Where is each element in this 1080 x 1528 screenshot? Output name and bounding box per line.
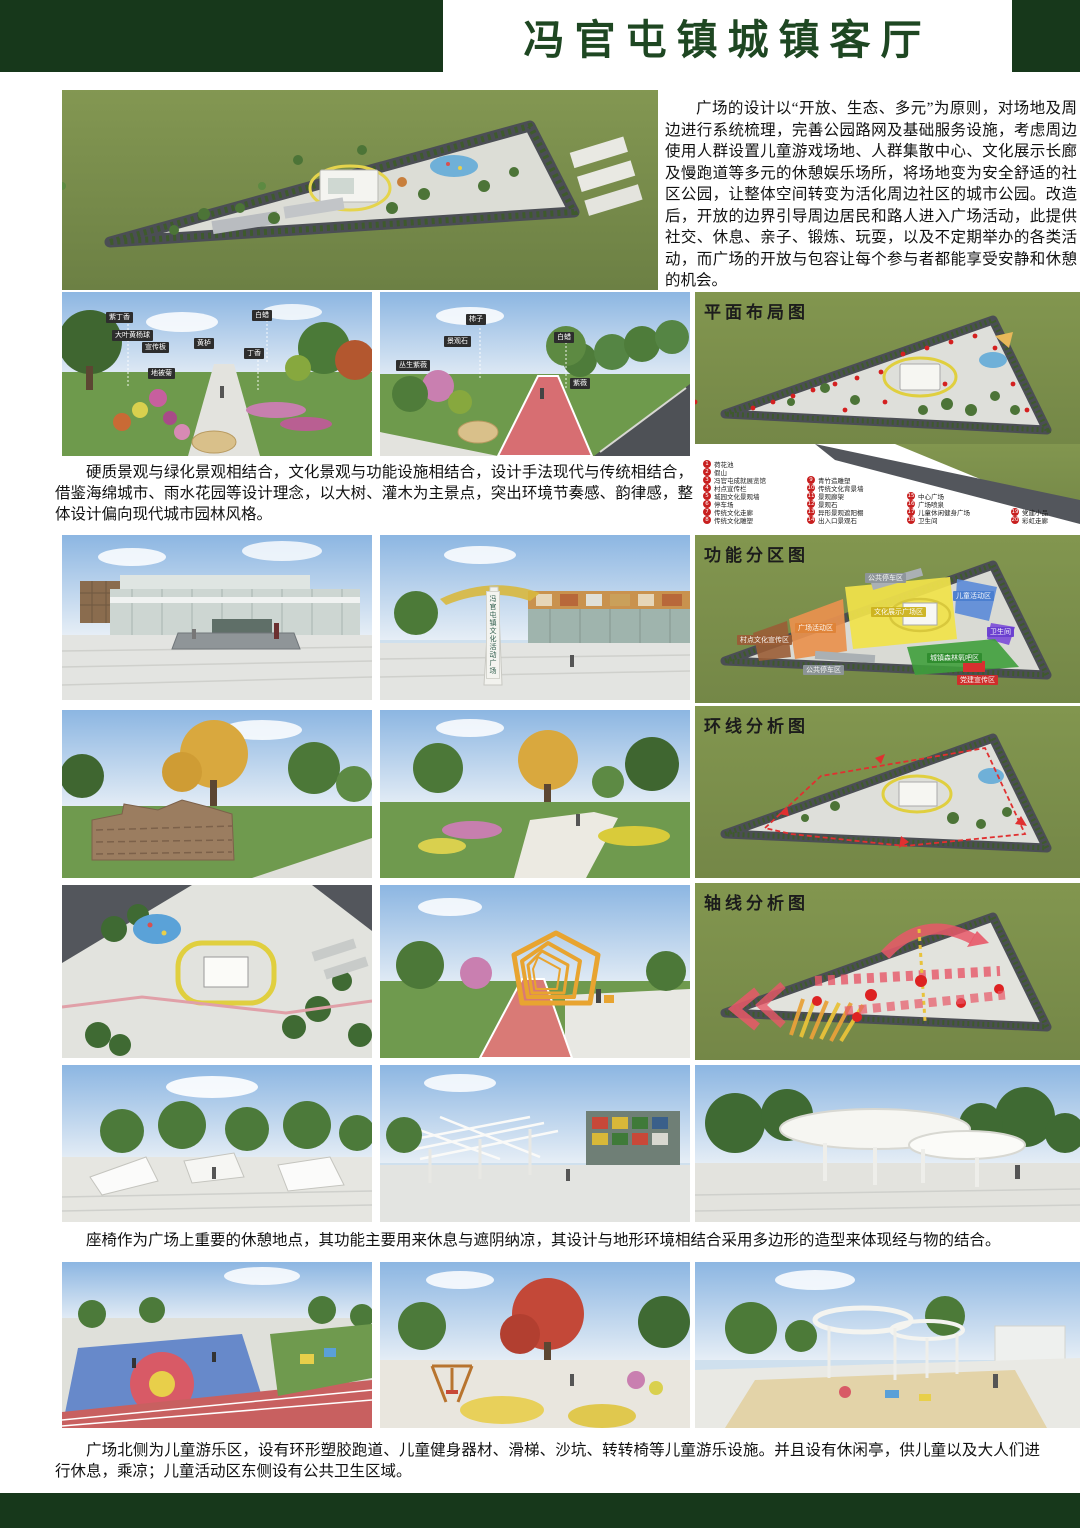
zone-label: 文化展示广场区 [871,607,926,617]
canopy-illustration [695,1065,1080,1222]
plant-label: 柿子 [466,314,486,325]
legend-number-badge: 1 [703,460,711,468]
title-box: 冯官屯镇城镇客厅 [443,0,1012,72]
zone-label: 村点文化宣传区 [737,635,792,645]
render-splash-court [62,1262,372,1428]
legend-number-badge: 18 [907,516,915,524]
render-brick-ruins [62,710,372,878]
render-park-path [380,710,690,878]
legend-number-badge: 16 [907,500,915,508]
zone-label: 儿童活动区 [953,591,994,601]
legend-number-badge: 7 [703,508,711,516]
playground-illustration [380,1262,690,1428]
plant-label: 丁香 [244,348,264,359]
plan-axis-title: 轴线分析图 [704,889,809,914]
aerial-illustration [62,90,658,290]
legend-number-badge: 15 [907,492,915,500]
footer-band [0,1493,1080,1528]
legend-number-badge: 14 [807,516,815,524]
plant-label: 紫丁香 [106,312,133,323]
seats-illustration [62,1065,372,1222]
ruins-illustration [62,710,372,878]
render-canopy-playzone [695,1262,1080,1428]
plan-axis: 轴线分析图 [695,883,1080,1060]
caption-seating: 座椅作为广场上重要的休憩地点，其功能主要用来休息与遮阴纳凉，其设计与地形环境相结… [55,1230,1037,1251]
render-culture-building [62,535,372,700]
poster: 冯官屯镇城镇客厅 [0,0,1080,1528]
plan-layout: 平面布局图 1荷花池 2假山 3冯官屯成就展览馆 4村点宣传栏 5城园文化景观墙… [695,292,1080,525]
legend-item: 18卫生间 [907,516,1003,524]
legend-label: 卫生间 [918,515,938,525]
legend-label: 出入口景观石 [818,515,857,525]
plan-zoning: 功能分区图 公共停车区 儿童活动区 卫生间 文化展示广场区 广场活动区 村点文化… [695,535,1080,703]
legend-number-badge: 2 [703,468,711,476]
plan-loop-title: 环线分析图 [704,712,809,737]
plan-loop: 环线分析图 [695,706,1080,878]
page-title: 冯官屯镇城镇客厅 [524,6,932,66]
legend-number-badge: 17 [907,508,915,516]
render-plaza-sign: 冯官屯镇文化活动广场 [380,535,690,700]
legend-column: 15中心广场 16广场喷泉 17儿童休闲健身广场 18卫生间 [907,492,1003,524]
zone-label: 党建宣传区 [957,675,998,685]
legend-number-badge: 12 [807,500,815,508]
plan-zoning-title: 功能分区图 [704,541,809,566]
legend-number-badge: 13 [807,508,815,516]
legend-number-badge: 6 [703,500,711,508]
arch-corridor-illustration [380,885,690,1058]
zone-label: 广场活动区 [795,623,836,633]
render-pergola [380,1065,690,1222]
design-note-paragraph: 硬质景观与绿化景观相结合，文化景观与功能设施相结合，设计手法现代与传统相结合，借… [55,462,693,525]
park-path-illustration [380,710,690,878]
render-plan-closeup [62,885,372,1058]
legend-number-badge: 4 [703,484,711,492]
render-aerial-overview [62,90,658,290]
intro-paragraph: 广场的设计以“开放、生态、多元”为原则，对场地及周边进行系统梳理，完善公园路网及… [665,98,1077,292]
legend-number-badge: 5 [703,492,711,500]
render-garden-path: 紫丁香 大叶黄杨球 宣传板 地被菊 黄栌 白蜡 丁香 [62,292,372,456]
legend-number-badge: 8 [703,516,711,524]
legend-item: 20彩虹走廊 [1011,516,1071,524]
legend-number-badge: 11 [807,492,815,500]
legend-number-badge: 10 [807,484,815,492]
zone-label: 公共停车区 [865,573,906,583]
render-organic-canopy [695,1065,1080,1222]
legend-number-badge: 3 [703,476,711,484]
plant-label: 景观石 [444,336,471,347]
pergola-illustration [380,1065,690,1222]
legend-label: 传统文化雕塑 [714,515,753,525]
legend-number-badge: 19 [1011,508,1019,516]
render-playground-tree [380,1262,690,1428]
track-illustration [380,292,690,456]
caption-children: 广场北侧为儿童游乐区，设有环形塑胶跑道、儿童健身器材、滑梯、沙坑、转转椅等儿童游… [55,1440,1040,1482]
plant-label: 紫薇 [570,378,590,389]
legend-item: 8传统文化雕塑 [703,516,799,524]
plan-closeup-illustration [62,885,372,1058]
render-arch-corridor [380,885,690,1058]
zone-label: 卫生间 [987,627,1014,637]
plant-label: 大叶黄杨球 [112,330,153,341]
plant-label: 地被菊 [148,368,175,379]
legend-label: 彩虹走廊 [1022,515,1048,525]
plant-label: 宣传板 [142,342,169,353]
plant-label: 丛生紫薇 [396,360,430,371]
zone-label: 城镇森林氧吧区 [927,653,982,663]
splash-court-illustration [62,1262,372,1428]
legend-column: 1荷花池 2假山 3冯官屯成就展览馆 4村点宣传栏 5城园文化景观墙 6停车场 … [703,460,799,524]
render-jogging-track: 柿子 景观石 丛生紫薇 白蜡 紫薇 [380,292,690,456]
building-illustration [62,535,372,700]
legend-number-badge: 20 [1011,516,1019,524]
plaza-sign-illustration [380,535,690,700]
legend-number-badge: 9 [807,476,815,484]
canopy-playzone-illustration [695,1262,1080,1428]
zone-label: 公共停车区 [803,665,844,675]
vertical-sign: 冯官屯镇文化活动广场 [486,591,500,679]
plant-label: 白蜡 [554,332,574,343]
render-polygon-seats [62,1065,372,1222]
legend-column: 19党建小品 20彩虹走廊 [1011,508,1071,524]
plan-legend: 1荷花池 2假山 3冯官屯成就展览馆 4村点宣传栏 5城园文化景观墙 6停车场 … [703,460,1071,524]
plan-layout-title: 平面布局图 [704,298,809,323]
plant-label: 黄栌 [194,338,214,349]
plant-label: 白蜡 [252,310,272,321]
legend-item: 14出入口景观石 [807,516,899,524]
legend-column: 9青竹造雕塑 10传统文化背景墙 11景观廊架 12景观石 13异形景观遮阳棚 … [807,476,899,524]
